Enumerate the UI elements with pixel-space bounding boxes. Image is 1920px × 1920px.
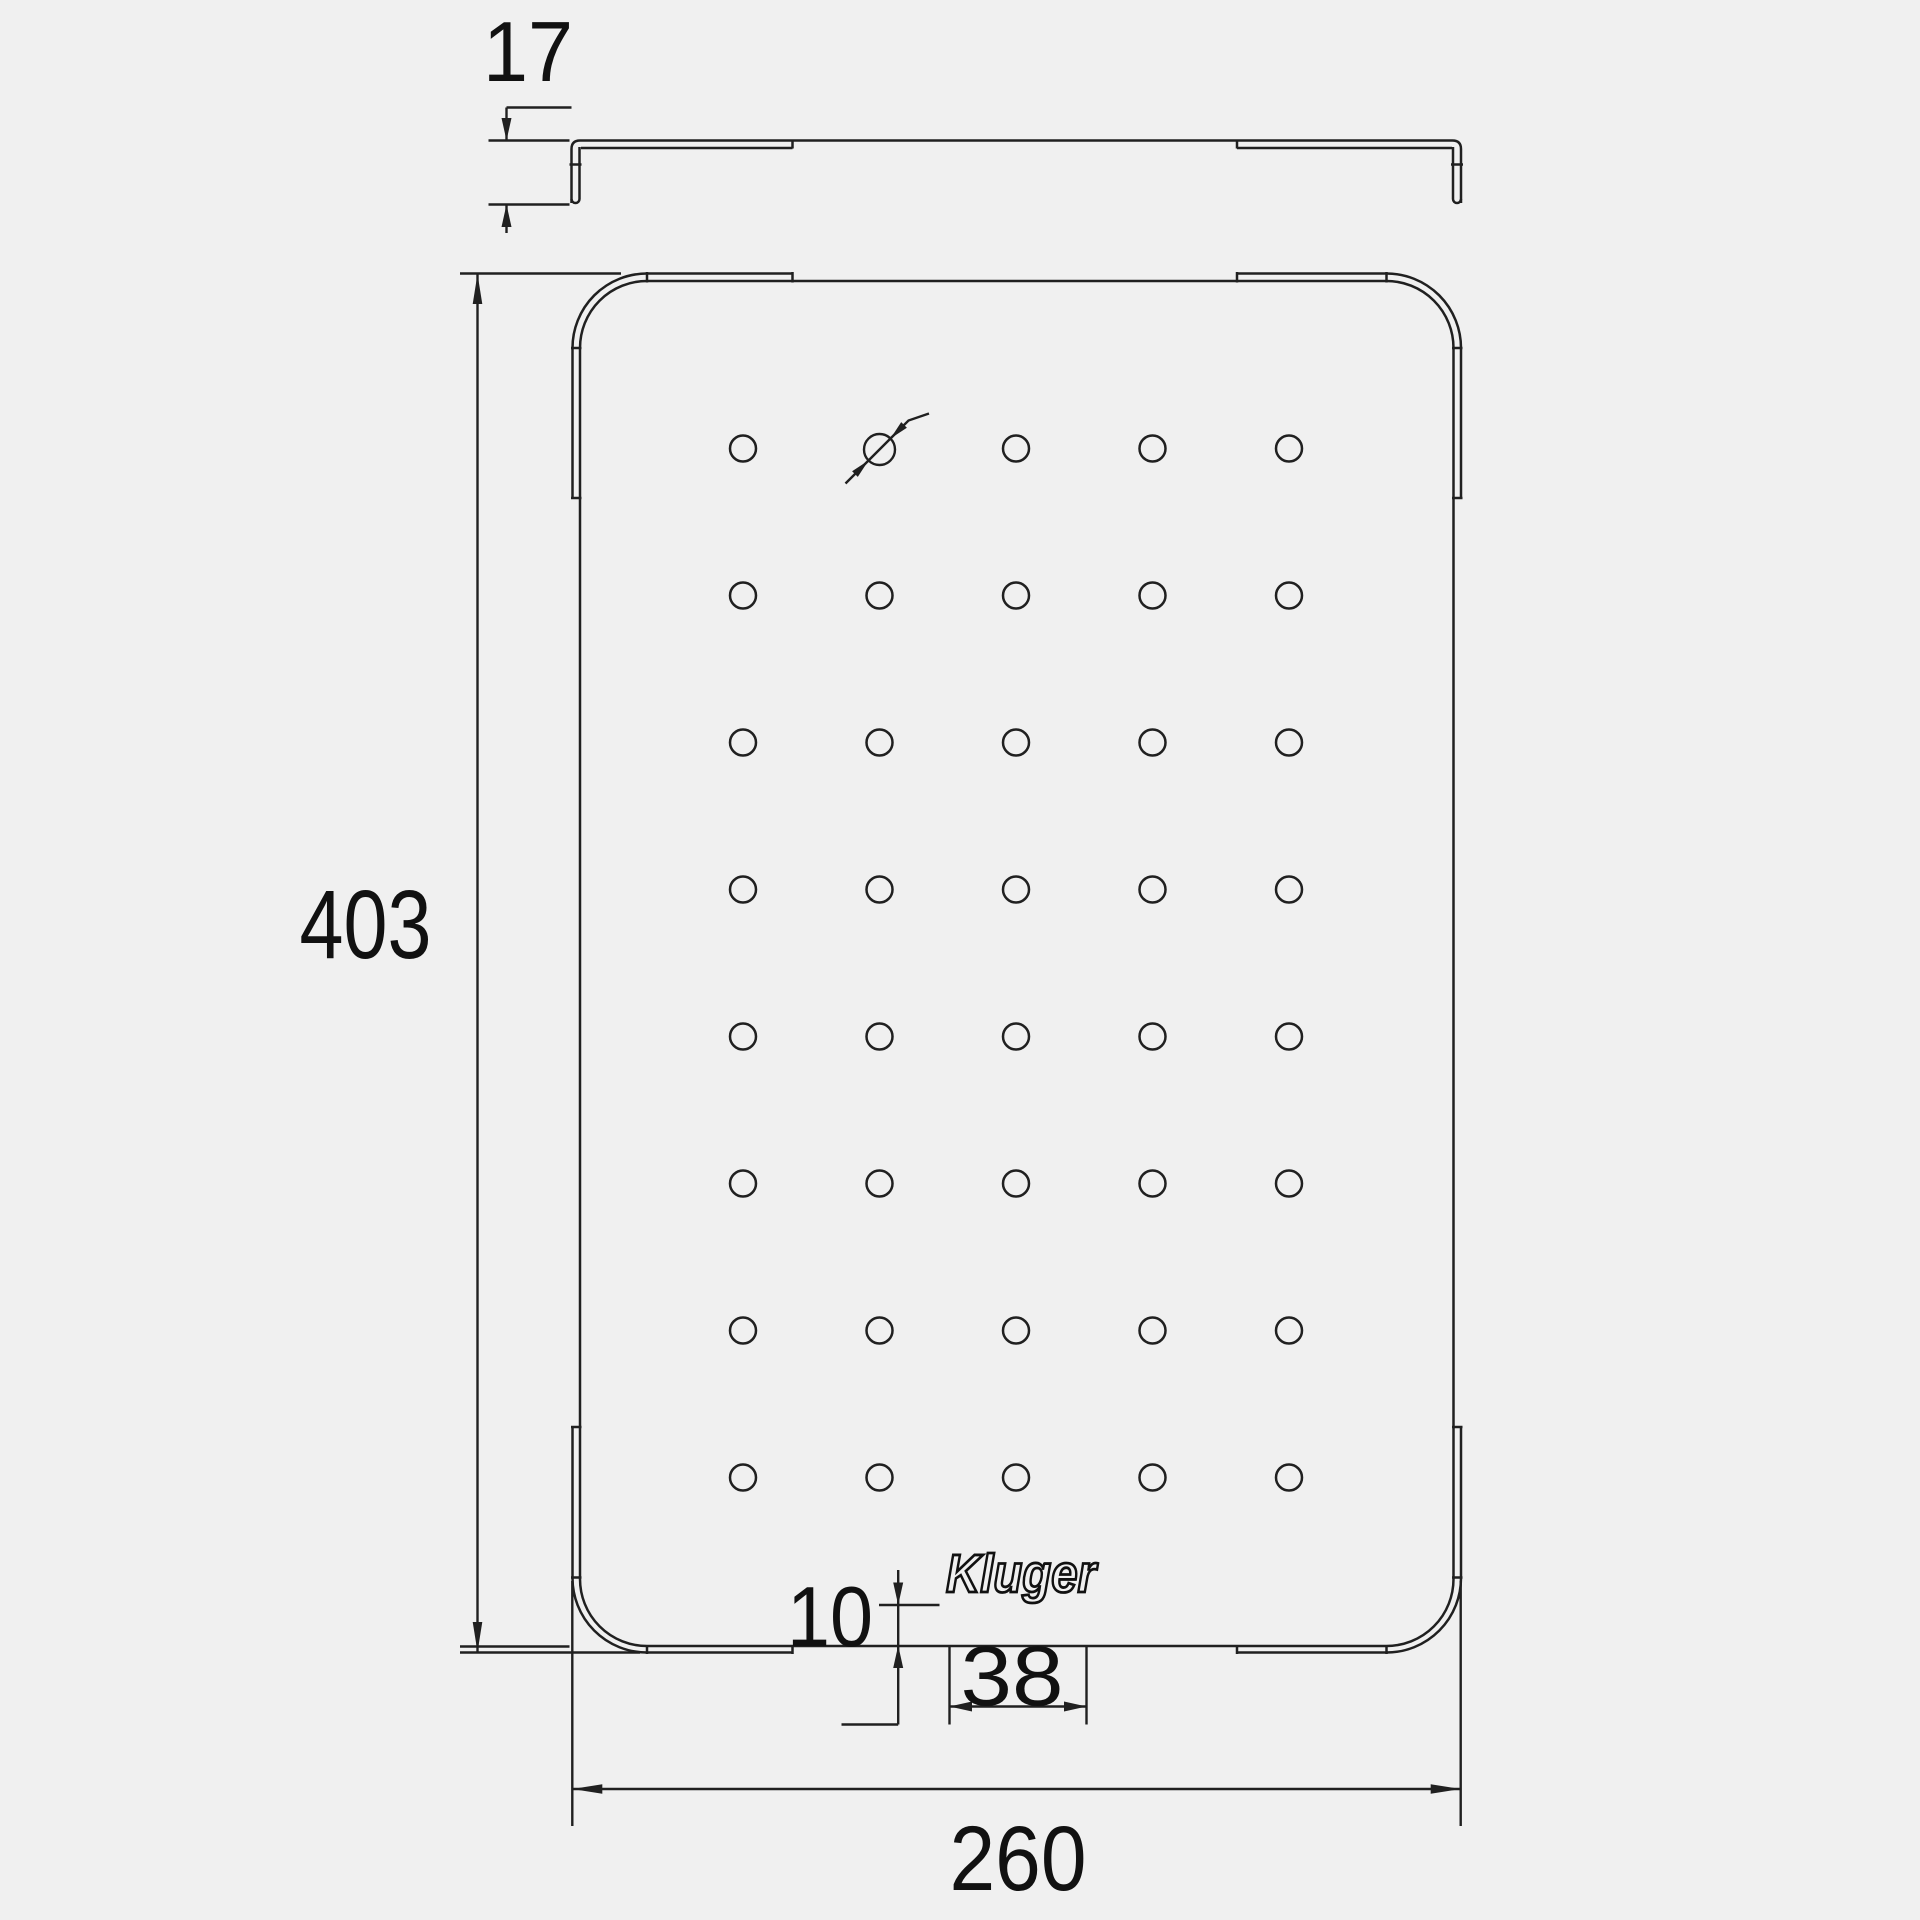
svg-text:403: 403	[300, 870, 432, 979]
svg-text:Kluger: Kluger	[946, 1544, 1099, 1604]
svg-text:260: 260	[950, 1808, 1087, 1910]
svg-text:10: 10	[787, 1570, 873, 1665]
svg-text:38: 38	[961, 1629, 1064, 1723]
svg-text:17: 17	[483, 5, 573, 100]
